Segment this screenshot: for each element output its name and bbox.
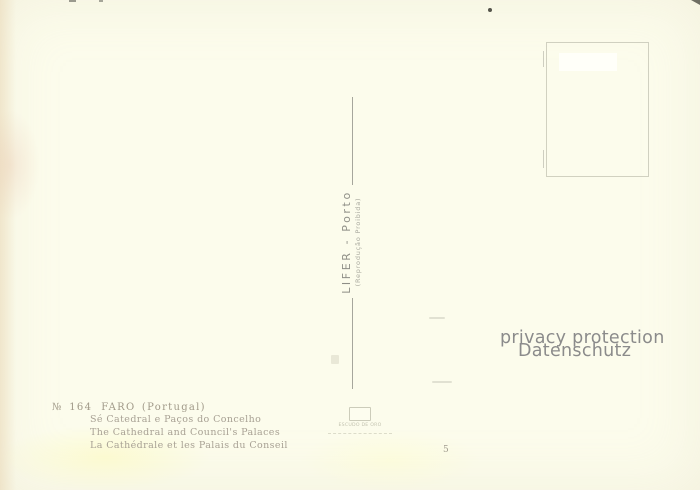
emblem-underline	[328, 433, 392, 434]
edge-speck	[69, 0, 76, 2]
caption-title: FARO (Portugal)	[101, 402, 206, 413]
caption-line-portuguese: Sé Catedral e Paços do Concelho	[90, 414, 288, 426]
publisher-imprint: LIFER - Porto (Reprodução Proibida)	[340, 187, 366, 297]
caption-heading: № 164 FARO (Portugal)	[52, 402, 288, 413]
caption-line-english: The Cathedral and Council's Palaces	[90, 427, 288, 439]
faint-smudge	[429, 317, 445, 319]
faint-smudge	[432, 381, 452, 383]
divider-line-top	[352, 97, 353, 185]
caption-line-french: La Cathédrale et les Palais du Conseil	[90, 440, 288, 452]
caption-block: № 164 FARO (Portugal) Sé Catedral e Paço…	[52, 402, 288, 452]
divider-line-bottom	[352, 298, 353, 389]
postcard-back: LIFER - Porto (Reprodução Proibida) № 16…	[0, 0, 700, 490]
corner-speck	[691, 0, 700, 5]
publisher-emblem: ESCUDO DE ORO	[328, 407, 392, 434]
emblem-frame-icon	[349, 407, 371, 421]
stamp-box	[546, 42, 649, 177]
edge-speck	[99, 0, 103, 2]
publisher-name: LIFER - Porto	[340, 187, 353, 297]
scan-stain	[300, 430, 480, 490]
privacy-watermark-line2: Datenschutz	[518, 341, 631, 361]
scan-edge-tint	[0, 0, 16, 490]
dust-speck	[488, 8, 492, 12]
scan-smudge	[0, 110, 40, 220]
publisher-note: (Reprodução Proibida)	[354, 187, 362, 297]
stamp-box-smudge	[559, 53, 617, 71]
emblem-text: ESCUDO DE ORO	[335, 422, 385, 427]
plate-number: 5	[443, 445, 449, 455]
faint-smudge	[331, 355, 339, 364]
catalog-number: № 164	[52, 402, 92, 413]
